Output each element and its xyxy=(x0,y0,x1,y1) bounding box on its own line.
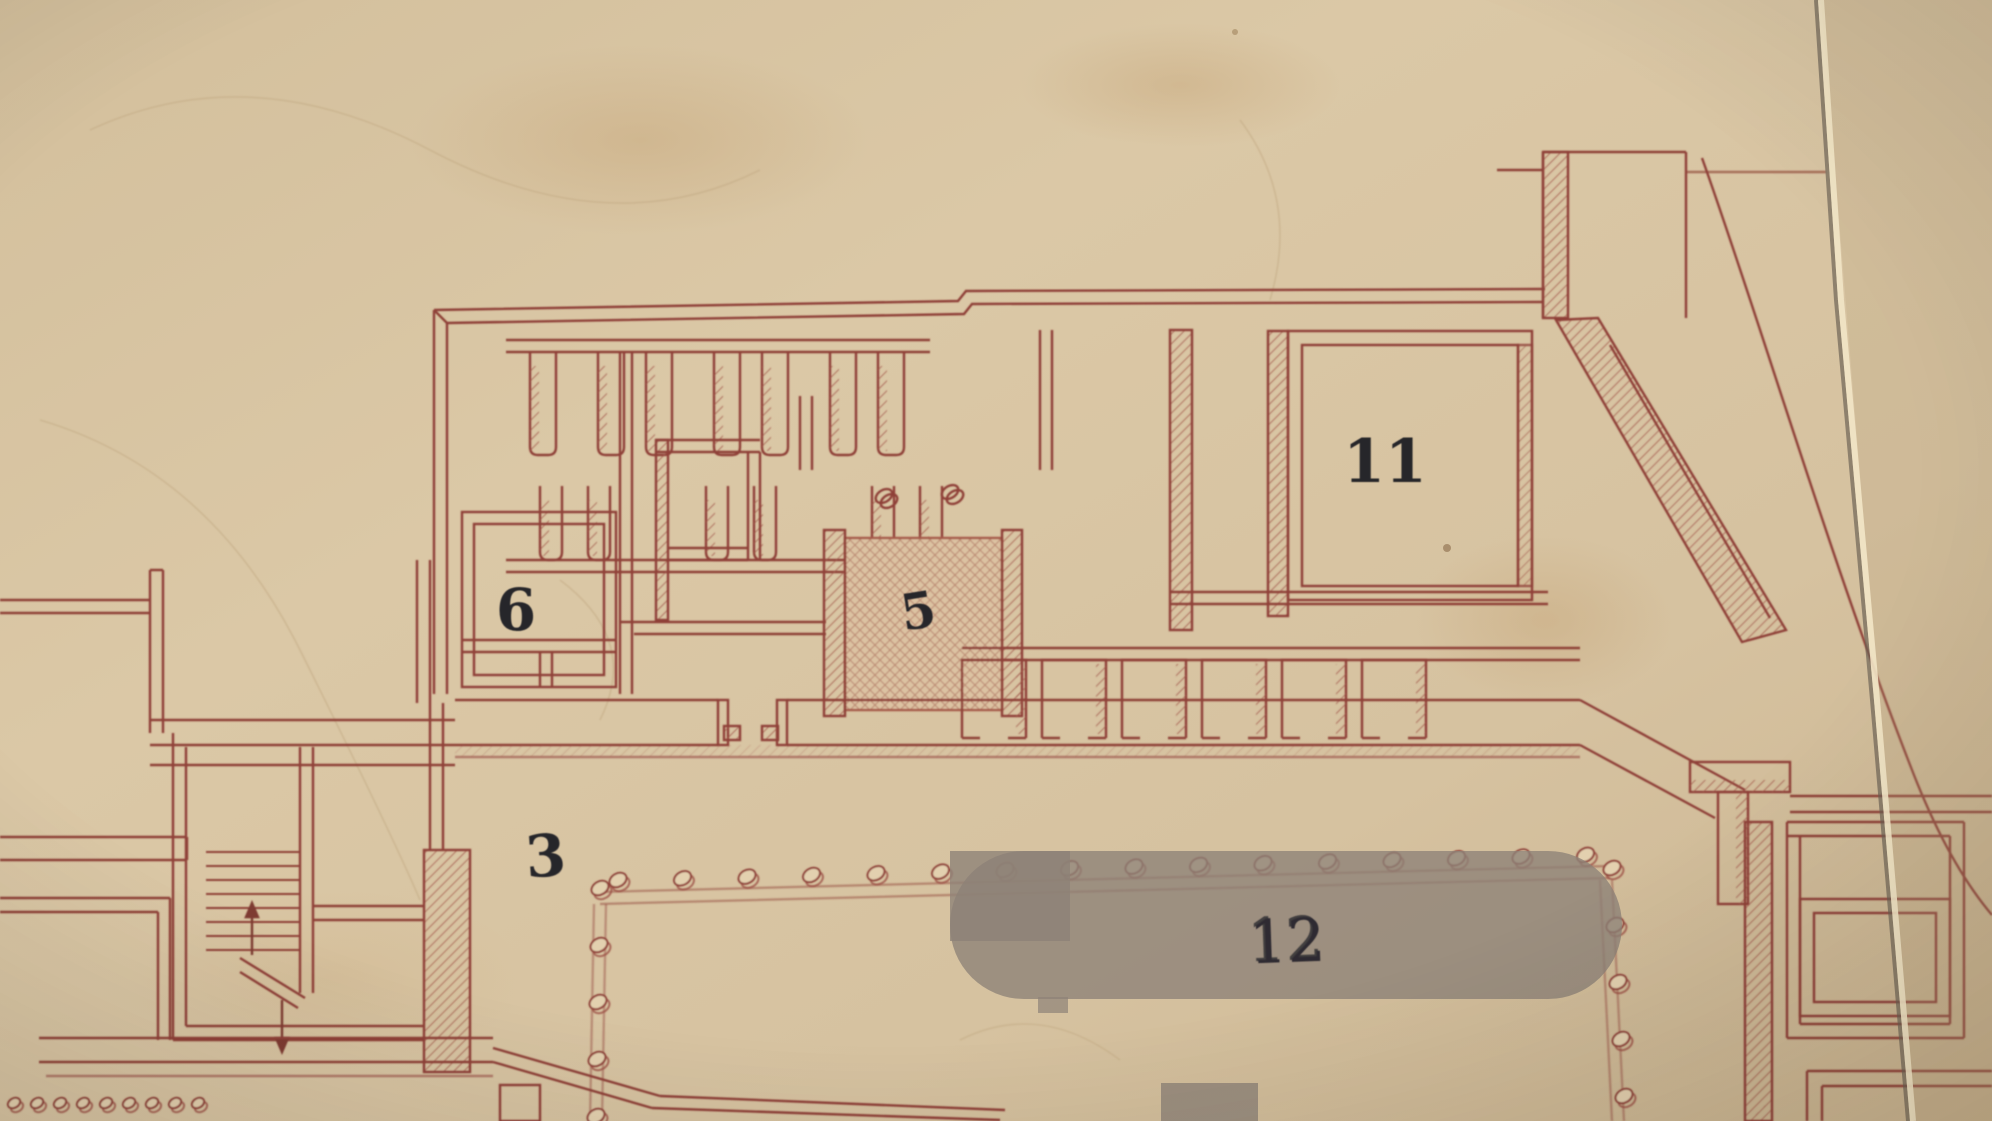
site-plan-photo: 6 5 11 3 12 12 xyxy=(0,0,1992,1121)
photo-vignette xyxy=(0,0,1992,1121)
site-plan-drawing: 6 5 11 3 12 12 xyxy=(0,0,1992,1121)
